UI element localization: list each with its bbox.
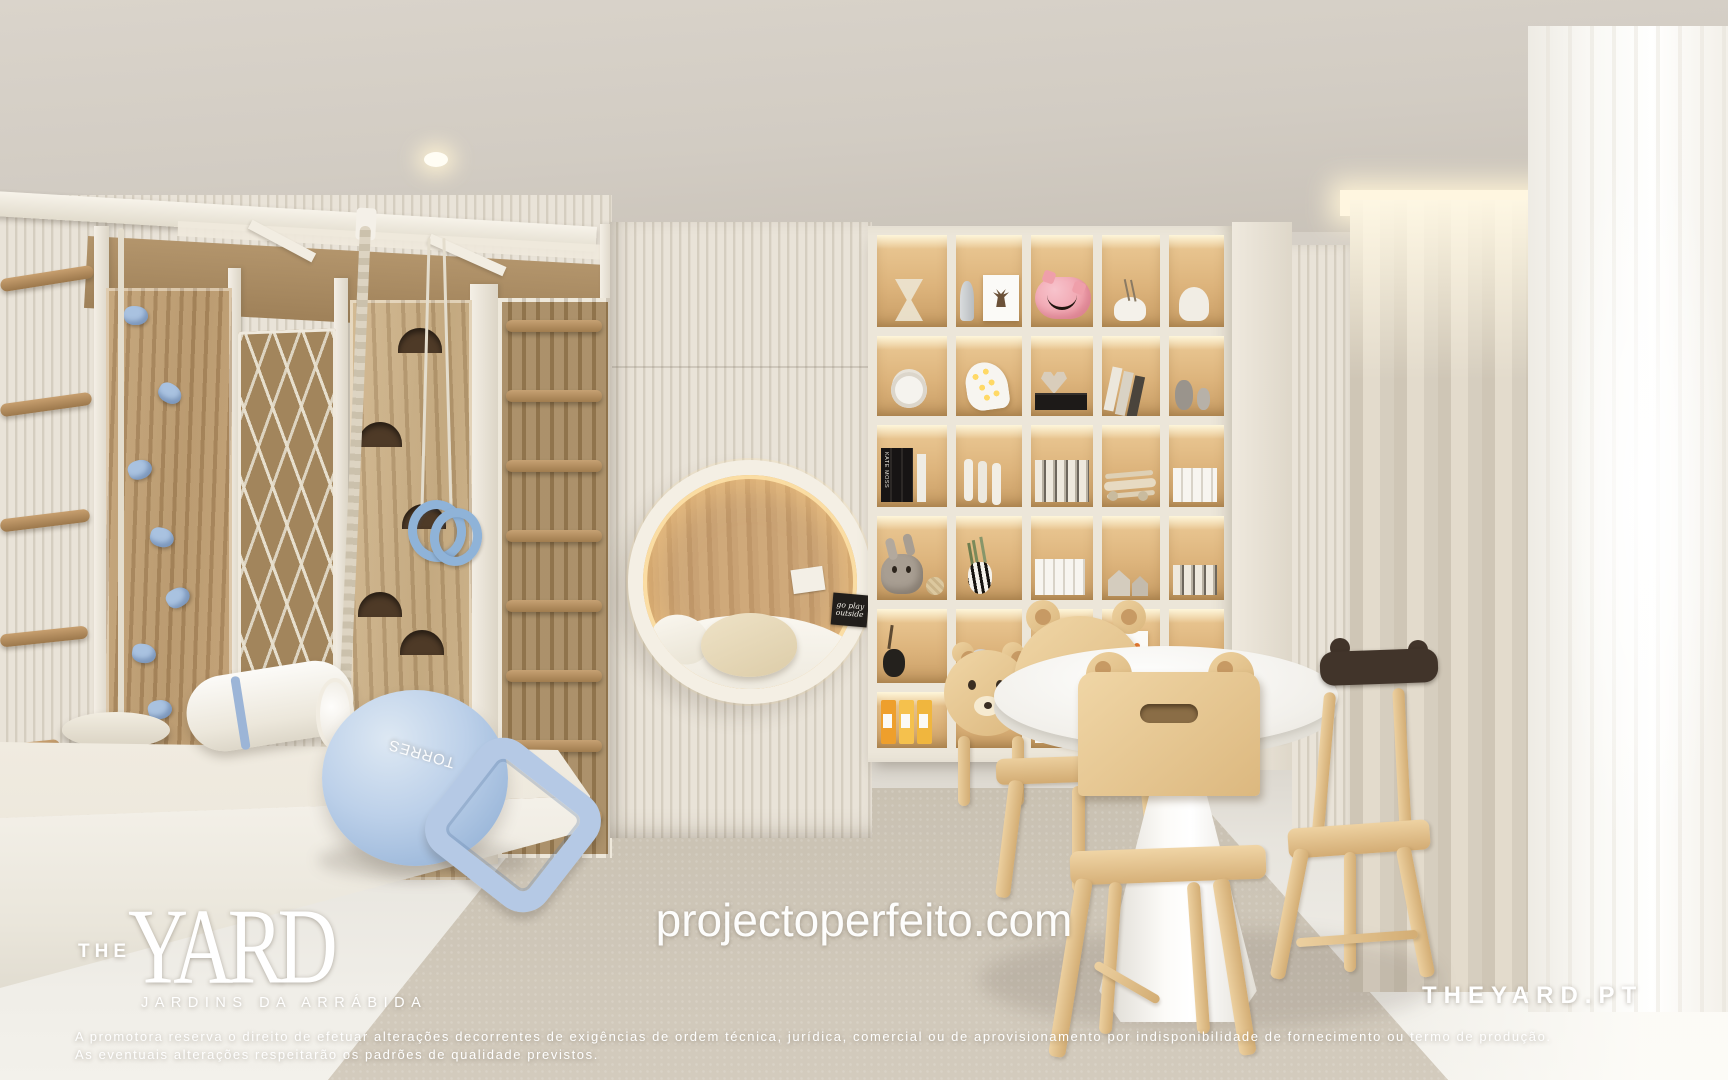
grey-vase (1175, 380, 1193, 410)
yellow-binder (881, 700, 896, 744)
book-row (1173, 565, 1217, 595)
shelf-cubby (1031, 336, 1093, 416)
climbing-hold (131, 642, 157, 664)
shelf-cubby (877, 235, 947, 327)
shelf-cubby (877, 609, 947, 683)
ladder-rung (506, 530, 602, 542)
disclaimer-line2: As eventuais alterações respeitarão os p… (75, 1047, 599, 1062)
shelf-cubby (956, 235, 1022, 327)
book-spine-label: KATE MOSS (883, 452, 889, 488)
ceiling-spotlight (424, 152, 448, 167)
ladder-rung (506, 390, 602, 402)
shelf-cubby: KATE MOSS (877, 425, 947, 507)
ladder-rung (506, 320, 602, 332)
bear-face-eyes (968, 680, 976, 690)
bear-face-nose (984, 702, 992, 709)
arch-hold (400, 630, 444, 655)
swing-rope (118, 228, 124, 720)
shelf-cubby (1102, 336, 1160, 416)
ladder-rung (506, 670, 602, 682)
white-book-row (1035, 559, 1085, 595)
white-book-row (1173, 468, 1217, 502)
chair-handle-slot (1140, 704, 1198, 723)
shelf-cubby (1102, 235, 1160, 327)
glass-bottle (960, 281, 974, 321)
nook-interior (643, 475, 857, 689)
shelf-cubby (956, 425, 1022, 507)
shelf-cubby (877, 516, 947, 600)
biplane-wheels (1108, 491, 1118, 501)
ladder-rung (506, 460, 602, 472)
ladder-rung (506, 600, 602, 612)
climbing-net (238, 328, 336, 703)
pinned-note (790, 566, 825, 594)
pig-plush (1035, 277, 1091, 319)
watermark-url: projectoperfeito.com (0, 893, 1728, 947)
nook-sign-text: go play outside (831, 600, 868, 619)
chair-leg (958, 736, 970, 806)
white-jar (1179, 287, 1209, 321)
swing-disc-seat (62, 712, 170, 748)
toy-biplane (1104, 478, 1157, 491)
reading-nook (628, 460, 872, 704)
climbing-hold (124, 306, 148, 325)
logo-subtitle: JARDINS DA ARRÁBIDA (141, 995, 427, 1011)
shelf-cubby (1169, 336, 1224, 416)
playroom-render: go play outside (0, 0, 1728, 1080)
shelf-cubby (1169, 235, 1224, 327)
shelf-cubby (1031, 425, 1093, 507)
rabbit-plush (881, 554, 923, 594)
shelf-cubby (1031, 235, 1093, 327)
deer-art-frame (983, 275, 1019, 321)
window-glow (1560, 120, 1728, 880)
shelf-cubby (1169, 516, 1224, 600)
yellow-binder (899, 700, 914, 744)
house-figurine (1108, 570, 1130, 596)
arch-hold (358, 592, 402, 617)
climbing-hold (163, 583, 193, 611)
alarm-clock (891, 372, 927, 408)
hourglass (895, 279, 923, 321)
striped-vase (968, 562, 992, 594)
black-book-stack (1035, 395, 1087, 410)
shelf-cubby (1169, 425, 1224, 507)
unicorn-marquee-light (963, 359, 1011, 412)
shelf-cubby (877, 336, 947, 416)
heart-ornament (1041, 370, 1067, 394)
dried-stem (887, 625, 893, 649)
chair-seat (1069, 845, 1266, 886)
shelf-cubby (877, 692, 947, 748)
climbing-hold (148, 525, 176, 549)
grey-vase-small (1197, 388, 1210, 410)
nook-sign: go play outside (831, 592, 870, 627)
white-book (917, 454, 926, 502)
spiral-candles (964, 459, 973, 501)
shelf-cubby (1031, 516, 1093, 600)
book-row (1035, 460, 1089, 502)
chair-top-rail (1319, 648, 1438, 686)
deer-icon (993, 289, 1009, 307)
black-vase (883, 649, 905, 677)
leaning-books (1104, 366, 1123, 411)
house-figurine-small (1132, 576, 1148, 596)
panel-seam (612, 366, 870, 368)
shelf-cubby (956, 516, 1022, 600)
disclaimer-line1: A promotora reserva o direito de efetuar… (75, 1029, 1552, 1044)
arch-hold (358, 422, 402, 447)
twine-ball (926, 577, 944, 595)
curtain-beige (1350, 200, 1546, 992)
shelf-cubby (956, 336, 1022, 416)
arch-hold (398, 328, 442, 353)
shelf-cubby (1102, 425, 1160, 507)
climbing-hold (125, 456, 154, 482)
front-chair-back (1078, 672, 1260, 796)
climbing-hold (155, 379, 185, 407)
shelf-cubby (1102, 516, 1160, 600)
yellow-binder (917, 700, 932, 744)
site-badge: THEYARD.PT (1422, 982, 1643, 1010)
black-book-spines: KATE MOSS (881, 448, 913, 502)
